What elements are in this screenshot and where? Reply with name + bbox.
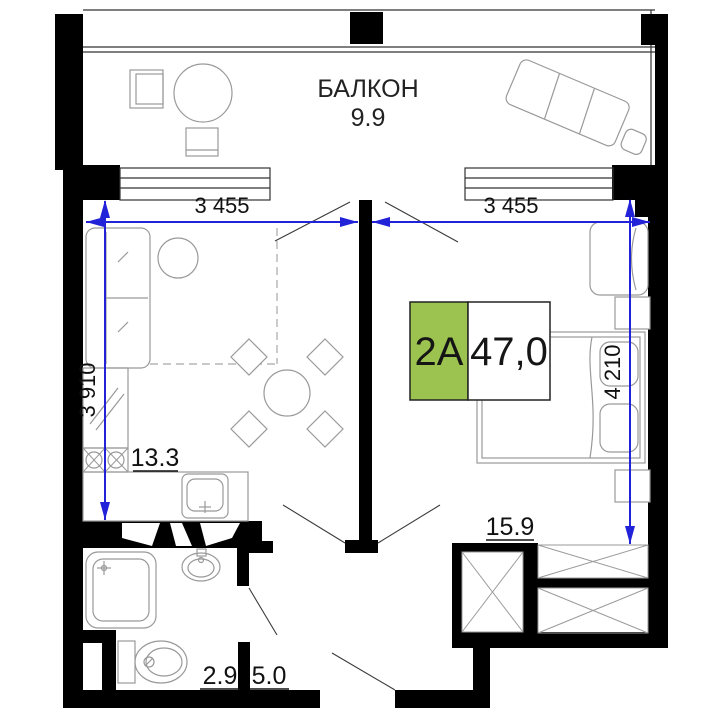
- nightstand: [615, 470, 650, 502]
- sun-lounger: [504, 58, 657, 159]
- area-bedroom: 15.9: [486, 513, 535, 541]
- floor-plan-page: 2A 47,0 БАЛКОН 9.9 13.3 15.9 2.9 5.0 3 4…: [0, 0, 725, 725]
- shower-tray: [86, 552, 156, 628]
- dining-table: [264, 370, 310, 416]
- living-kitchen-furniture: [83, 228, 343, 521]
- washbasin: [182, 549, 220, 581]
- balcony-furniture: [130, 58, 657, 159]
- dim-living-width: 3 455: [194, 193, 249, 218]
- armchair: [590, 222, 648, 295]
- dining-chair: [307, 411, 343, 447]
- dim-living-depth: 3 910: [75, 362, 100, 417]
- unit-total-area: 47,0: [470, 330, 548, 374]
- dining-chair: [231, 339, 267, 375]
- side-table: [158, 238, 198, 278]
- door-swings: [249, 202, 458, 690]
- balcony-area: 9.9: [351, 104, 386, 132]
- toilet: [118, 641, 187, 683]
- unit-number: 2A: [415, 330, 464, 374]
- balcony-chair: [130, 70, 163, 108]
- balcony-round-table: [174, 64, 232, 122]
- kitchen-sink: [182, 474, 228, 518]
- balcony-stool: [186, 128, 218, 156]
- dim-bedroom-depth: 4 210: [600, 344, 625, 399]
- dim-bedroom-width: 3 455: [483, 193, 538, 218]
- pillow: [600, 404, 638, 452]
- area-kitchen-living: 13.3: [131, 444, 180, 472]
- dining-chair: [307, 339, 343, 375]
- closets: [462, 545, 648, 633]
- nightstand: [615, 297, 650, 329]
- area-bathroom: 2.9: [203, 662, 238, 690]
- balcony-label: БАЛКОН: [317, 75, 418, 103]
- dining-chair: [231, 411, 267, 447]
- floor-plan: 2A 47,0 БАЛКОН 9.9 13.3 15.9 2.9 5.0 3 4…: [0, 0, 725, 725]
- unit-badge: 2A 47,0: [410, 302, 550, 400]
- area-hallway: 5.0: [252, 662, 287, 690]
